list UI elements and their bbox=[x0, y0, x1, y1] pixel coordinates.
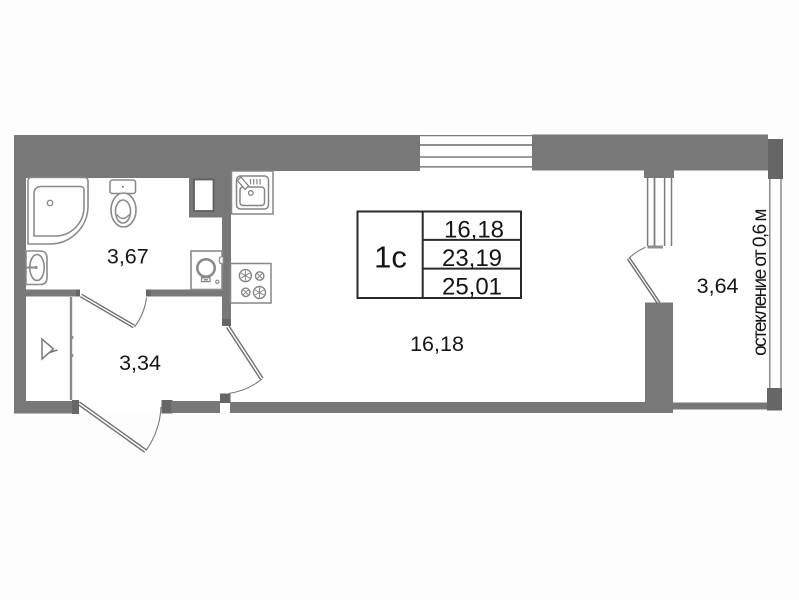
svg-text:16,18: 16,18 bbox=[410, 332, 464, 356]
svg-text:16,18: 16,18 bbox=[444, 217, 504, 244]
svg-text:23,19: 23,19 bbox=[442, 245, 502, 272]
svg-text:3,34: 3,34 bbox=[119, 351, 161, 375]
svg-text:3,67: 3,67 bbox=[107, 245, 149, 269]
svg-text:1с: 1с bbox=[374, 240, 407, 275]
svg-text:25,01: 25,01 bbox=[442, 274, 502, 301]
svg-text:3,64: 3,64 bbox=[697, 274, 739, 298]
svg-text:остекление от 0,6 м: остекление от 0,6 м bbox=[750, 210, 771, 356]
